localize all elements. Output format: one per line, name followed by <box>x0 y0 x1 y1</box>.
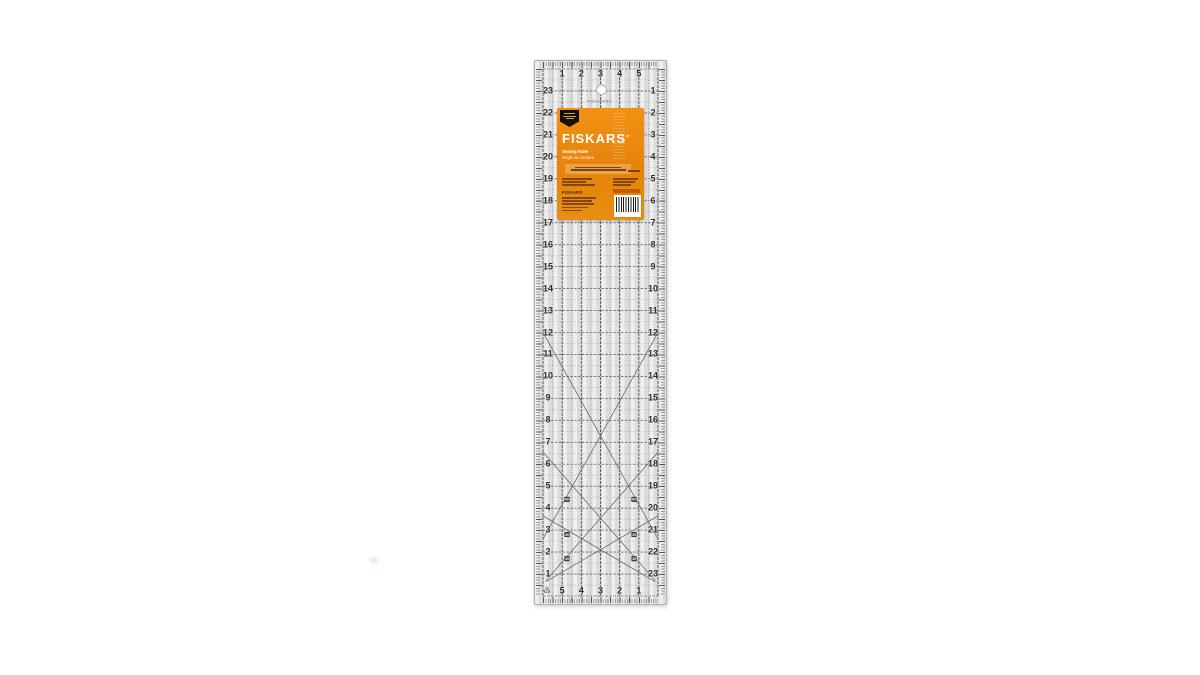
ruler-number: 7 <box>545 438 550 447</box>
svg-text:45: 45 <box>565 557 569 561</box>
ruler-number: 11 <box>543 350 553 359</box>
ruler-number: 9 <box>545 394 550 403</box>
ruler-number: 15 <box>648 394 658 403</box>
label-right-info-lines <box>613 178 640 188</box>
photo-speck <box>368 556 380 565</box>
barcode <box>614 195 641 217</box>
svg-text:30: 30 <box>632 533 636 537</box>
ruler-number: 1 <box>650 86 655 95</box>
ruler-number: 15 <box>543 262 553 271</box>
ruler-number: 9 <box>650 262 655 271</box>
ruler-number: 11 <box>648 306 658 315</box>
ruler-number: 21 <box>648 526 658 535</box>
ruler-number: 12 <box>543 328 553 337</box>
ruler-number: 3 <box>598 587 603 596</box>
hang-hole <box>596 84 607 95</box>
ruler-number: 22 <box>648 548 658 557</box>
edge-ticks-right <box>659 69 665 596</box>
ruler-number: 14 <box>543 284 553 293</box>
ruler-number: 22 <box>543 108 553 117</box>
ruler-number: 17 <box>543 218 553 227</box>
fiskars-label: FISKARS® Sewing Ruler Règle de couture F… <box>557 108 644 220</box>
label-small-brand: FISKARS <box>562 190 583 195</box>
ruler-number: 5 <box>545 482 550 491</box>
edge-ticks-left <box>536 69 542 596</box>
ruler-number: 13 <box>648 350 658 359</box>
ruler-number: 6 <box>545 460 550 469</box>
ruler-number: 2 <box>617 587 622 596</box>
ruler-number: 20 <box>543 152 553 161</box>
product-photo: 603045603045 123455432123222120191817161… <box>0 0 1200 675</box>
edge-ticks-top <box>543 62 658 68</box>
label-brand-text: FISKARS <box>562 131 626 146</box>
label-highlight-chip <box>613 189 640 193</box>
recycle-triangle-icon: ♳ <box>543 587 550 595</box>
ruler-number: 20 <box>648 504 658 513</box>
ruler-number: 2 <box>545 548 550 557</box>
ruler-number: 4 <box>650 152 655 161</box>
ruler-number: 18 <box>648 460 658 469</box>
svg-text:45: 45 <box>632 557 636 561</box>
ruler-number: 10 <box>648 284 658 293</box>
label-description-lines <box>565 164 631 174</box>
edge-ticks-bottom <box>543 597 658 603</box>
ruler-number: 4 <box>617 70 622 79</box>
ruler-number: 6 <box>650 196 655 205</box>
registered-mark: ® <box>626 134 629 139</box>
label-info-lines-top <box>562 178 598 188</box>
svg-text:30: 30 <box>565 533 569 537</box>
ruler-number: 16 <box>543 240 553 249</box>
svg-text:60: 60 <box>632 498 636 502</box>
ruler-number: 19 <box>543 174 553 183</box>
label-size-text-line <box>628 170 640 172</box>
ruler-number: 5 <box>560 587 565 596</box>
ruler-number: 3 <box>545 526 550 535</box>
ruler-brand-print: FISKARS® <box>588 99 613 104</box>
ruler-number: 8 <box>545 416 550 425</box>
ruler-number: 16 <box>648 416 658 425</box>
ruler-number: 5 <box>650 174 655 183</box>
ruler-number: 8 <box>650 240 655 249</box>
ruler-number: 2 <box>650 108 655 117</box>
ruler-number: 4 <box>545 504 550 513</box>
ruler-number: 23 <box>648 570 658 579</box>
ruler-number: 13 <box>543 306 553 315</box>
ruler-number: 3 <box>598 70 603 79</box>
label-brand-wordmark: FISKARS® <box>562 132 629 145</box>
label-title-en: Sewing Ruler <box>562 149 589 154</box>
ruler-number: 19 <box>648 482 658 491</box>
label-title-fr: Règle de couture <box>562 155 594 160</box>
ruler-number: 1 <box>560 70 565 79</box>
ruler-number: 4 <box>579 587 584 596</box>
label-address-lines <box>562 197 598 213</box>
quality-badge-icon <box>560 110 579 127</box>
ruler-number: 10 <box>543 372 553 381</box>
sewing-ruler: 603045603045 123455432123222120191817161… <box>534 60 667 605</box>
ruler-number: 23 <box>543 86 553 95</box>
ruler-number: 5 <box>636 70 641 79</box>
svg-text:60: 60 <box>565 498 569 502</box>
ruler-number: 1 <box>636 587 641 596</box>
ruler-number: 1 <box>545 570 550 579</box>
ruler-number: 7 <box>650 218 655 227</box>
ruler-number: 18 <box>543 196 553 205</box>
ruler-number: 14 <box>648 372 658 381</box>
ruler-number: 17 <box>648 438 658 447</box>
ruler-number: 21 <box>543 130 553 139</box>
ruler-number: 3 <box>650 130 655 139</box>
ruler-number: 12 <box>648 328 658 337</box>
ruler-number: 2 <box>579 70 584 79</box>
